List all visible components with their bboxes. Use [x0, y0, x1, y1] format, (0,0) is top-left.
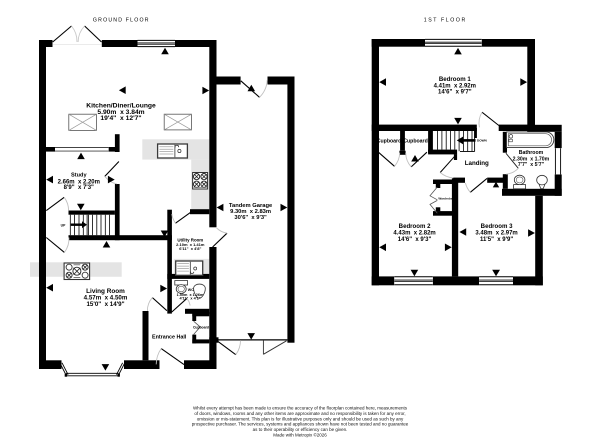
svg-text:omission or mis-statement. Thi: omission or mis-statement. This plan is …: [197, 416, 404, 421]
svg-text:4.43m x 2.82m: 4.43m x 2.82m: [393, 230, 435, 236]
svg-text:15'0" x 14'9": 15'0" x 14'9": [86, 301, 124, 308]
svg-text:Entrance Hall: Entrance Hall: [152, 334, 187, 340]
svg-text:Made with Metropix ©2026: Made with Metropix ©2026: [273, 432, 327, 438]
svg-text:UP: UP: [61, 223, 66, 227]
svg-text:8'9" x 7'3": 8'9" x 7'3": [64, 185, 94, 191]
svg-text:Cupboard: Cupboard: [403, 138, 428, 144]
svg-text:Bedroom 2: Bedroom 2: [399, 223, 431, 230]
svg-text:4'11" x 4'1": 4'11" x 4'1": [179, 297, 200, 301]
svg-text:Bedroom 1: Bedroom 1: [439, 76, 471, 83]
svg-text:Wardrobe: Wardrobe: [438, 197, 453, 201]
svg-text:Bedroom 3: Bedroom 3: [481, 223, 513, 230]
svg-text:of doors, windows, rooms and a: of doors, windows, rooms and any other i…: [194, 411, 405, 416]
svg-text:Cupboard: Cupboard: [377, 138, 402, 144]
svg-text:Study: Study: [71, 173, 87, 179]
svg-text:6'11" x 4'8": 6'11" x 4'8": [179, 246, 201, 251]
svg-text:14'6" x 9'3": 14'6" x 9'3": [398, 237, 432, 243]
svg-text:WC: WC: [188, 288, 194, 292]
svg-text:Tandem Garage: Tandem Garage: [229, 203, 273, 209]
svg-text:3.48m x 2.97m: 3.48m x 2.97m: [475, 230, 517, 236]
svg-text:prospective purchaser. The ser: prospective purchaser. The services, sys…: [192, 422, 409, 427]
svg-text:Whilst every attempt has been: Whilst every attempt has been made to en…: [193, 406, 408, 411]
svg-text:11'5" x 9'9": 11'5" x 9'9": [480, 237, 513, 243]
svg-text:19'4" x 12'7": 19'4" x 12'7": [100, 115, 141, 122]
svg-text:1ST FLOOR: 1ST FLOOR: [424, 17, 467, 23]
svg-text:Landing: Landing: [465, 160, 489, 167]
svg-text:GROUND FLOOR: GROUND FLOOR: [93, 17, 150, 23]
svg-text:Cupboard: Cupboard: [193, 326, 209, 330]
svg-text:Bathroom: Bathroom: [519, 150, 544, 156]
svg-text:7'7" x 5'7": 7'7" x 5'7": [518, 162, 545, 168]
svg-text:14'6" x 9'7": 14'6" x 9'7": [438, 89, 472, 95]
svg-text:30'6" x 9'3": 30'6" x 9'3": [234, 215, 267, 221]
svg-text:DOWN: DOWN: [477, 138, 488, 142]
svg-text:as to their operability or eff: as to their operability or efficiency ca…: [253, 427, 348, 432]
